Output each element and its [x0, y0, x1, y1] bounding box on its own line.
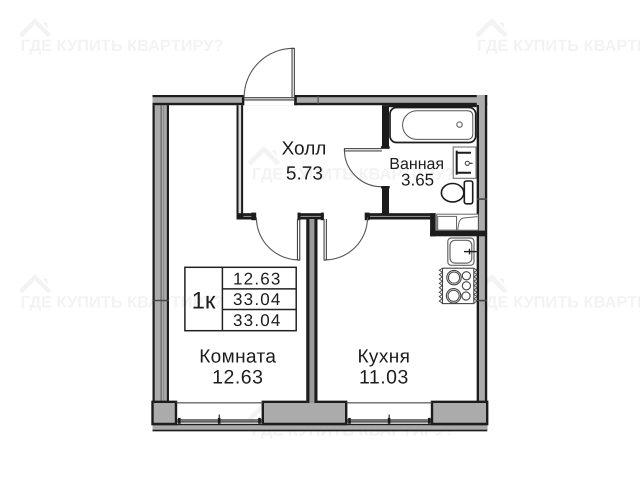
svg-text:Комната: Комната [199, 346, 276, 367]
svg-text:ГДЕ КУПИТЬ КВАРТИРУ?: ГДЕ КУПИТЬ КВАРТИРУ? [477, 293, 640, 311]
svg-text:33.04: 33.04 [233, 290, 282, 309]
svg-text:3.65: 3.65 [401, 170, 434, 189]
svg-text:ГДЕ КУПИТЬ КВАРТИРУ?: ГДЕ КУПИТЬ КВАРТИРУ? [21, 37, 224, 55]
svg-text:1к: 1к [192, 288, 216, 315]
svg-text:33.04: 33.04 [233, 311, 282, 330]
svg-text:Кухня: Кухня [357, 346, 410, 367]
svg-text:Холл: Холл [282, 138, 327, 159]
svg-text:11.03: 11.03 [359, 366, 409, 388]
svg-text:5.73: 5.73 [286, 163, 323, 184]
svg-text:ГДЕ КУПИТЬ КВАРТИРУ?: ГДЕ КУПИТЬ КВАРТИРУ? [477, 37, 640, 55]
svg-text:12.63: 12.63 [212, 366, 263, 388]
svg-text:12.63: 12.63 [233, 269, 282, 288]
